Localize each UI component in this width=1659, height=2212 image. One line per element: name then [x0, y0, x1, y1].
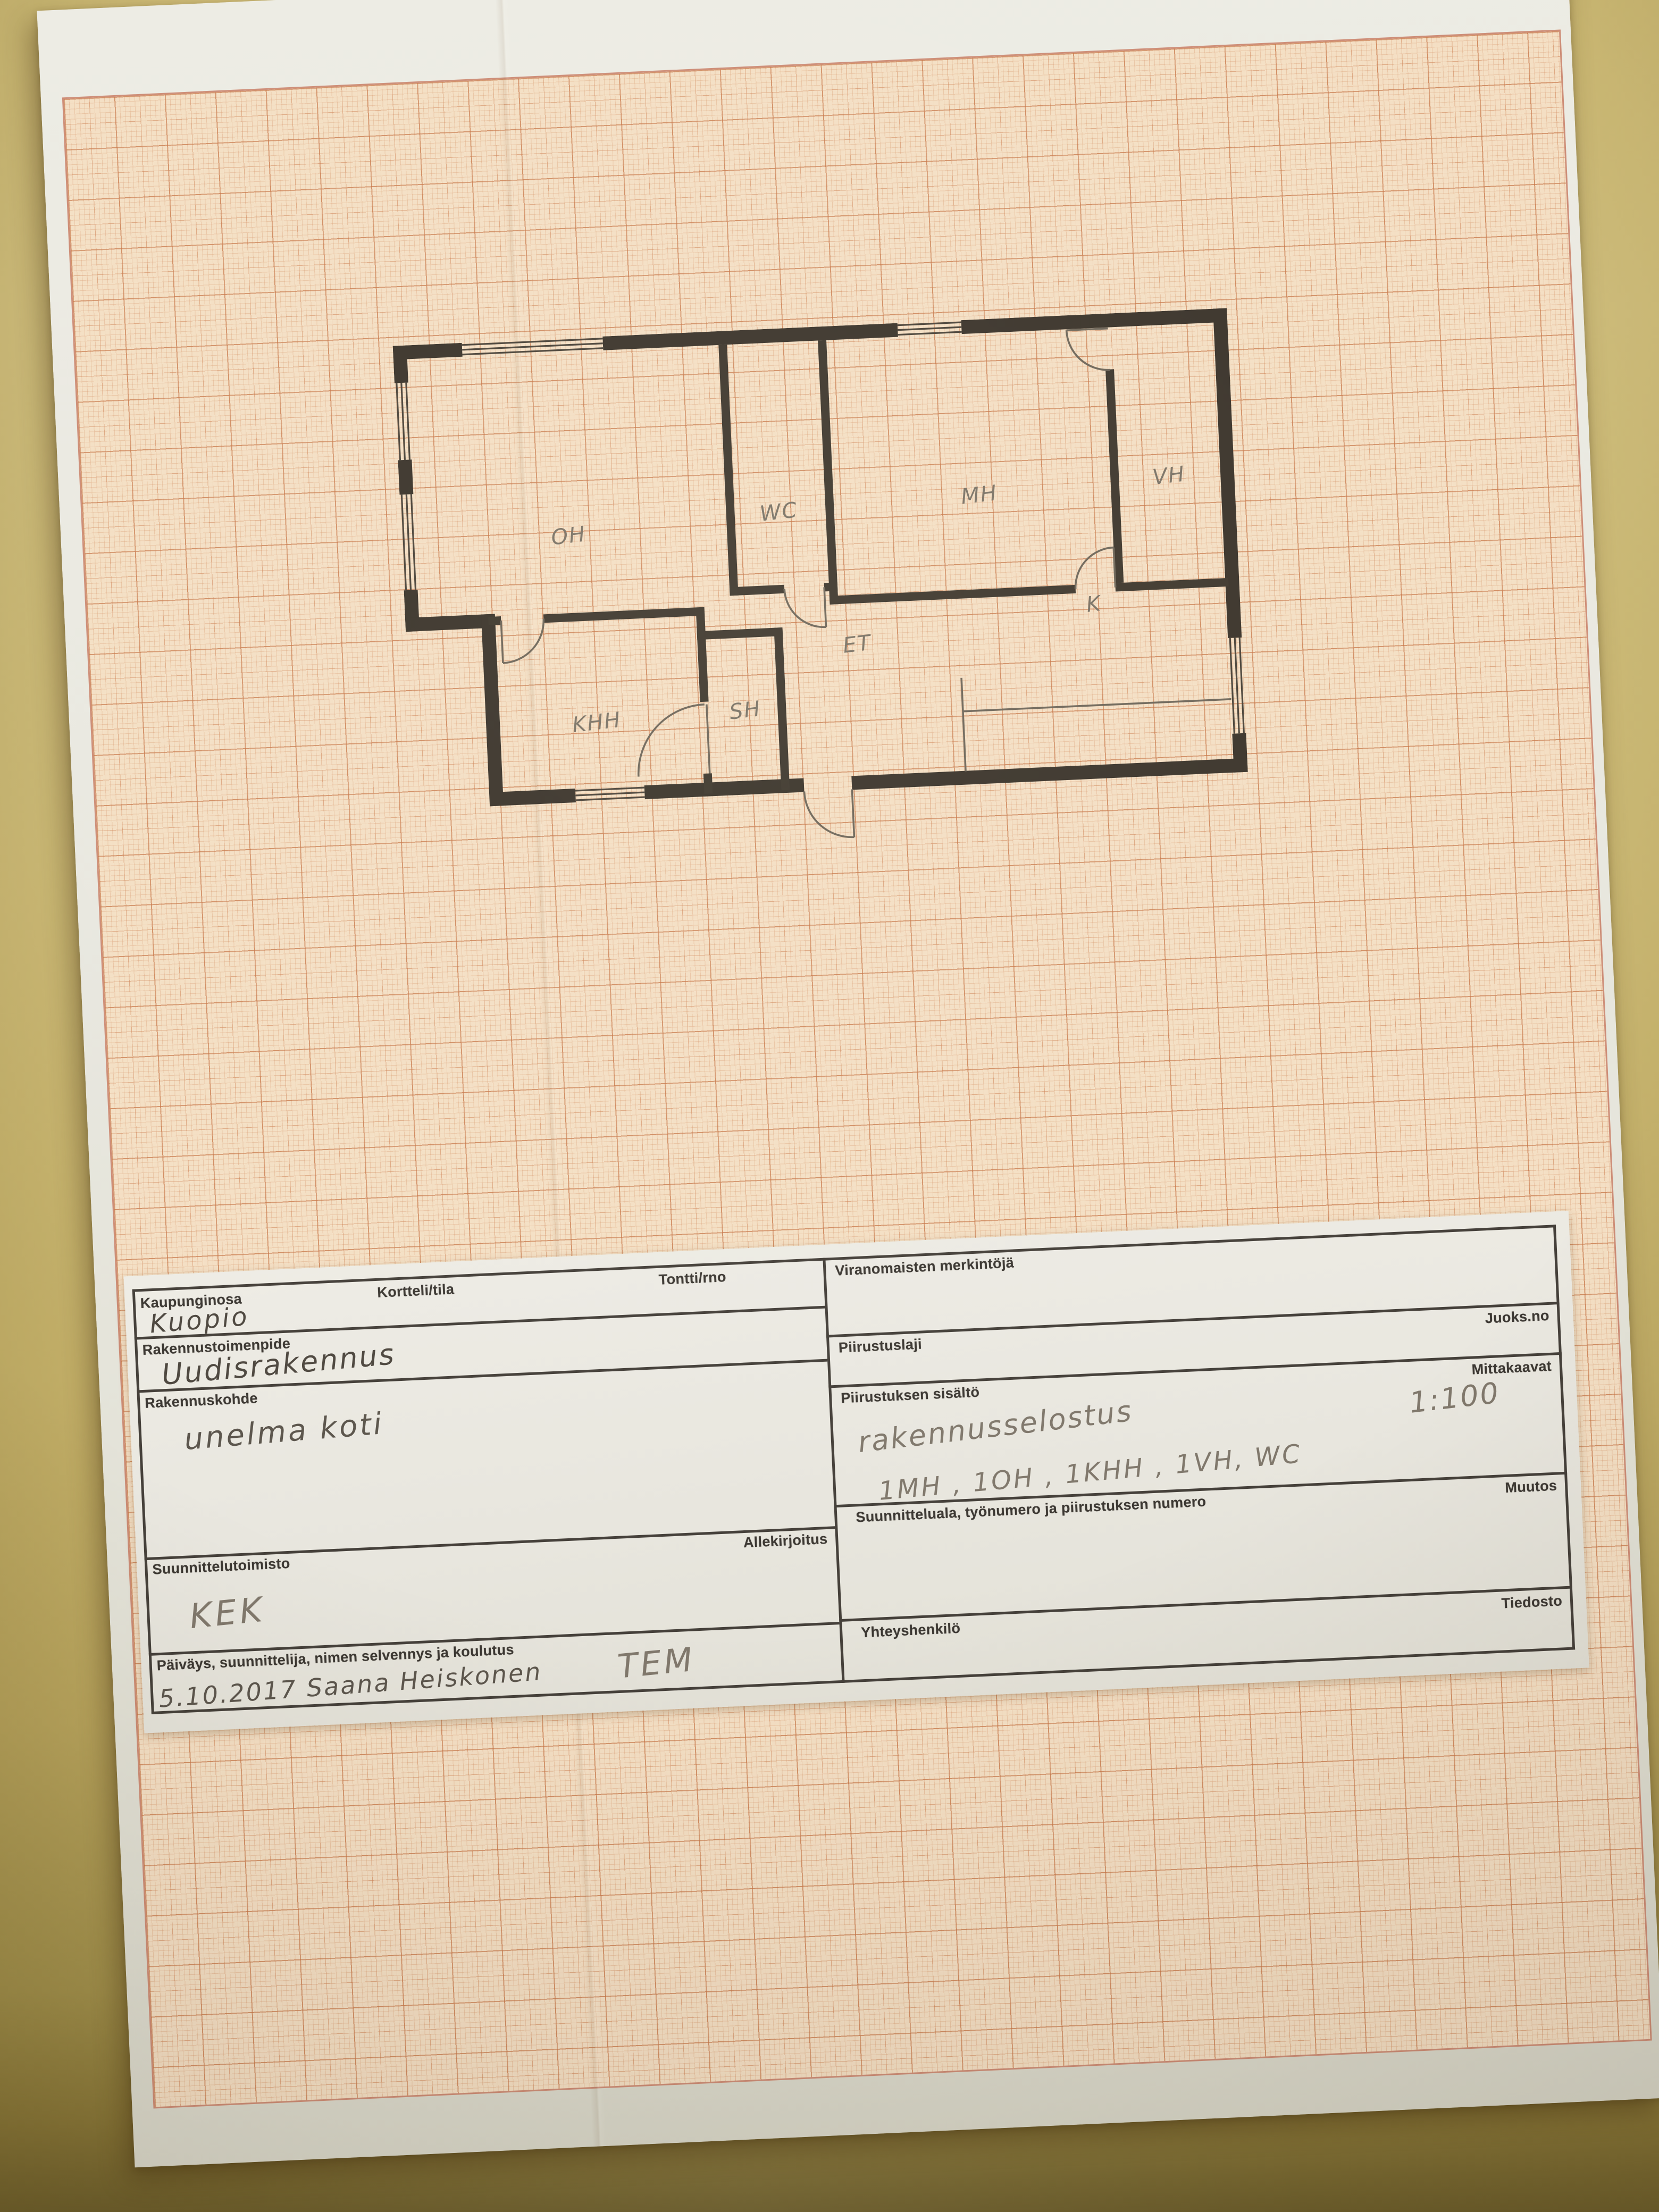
label-yhteyshenkilo: Yhteyshenkilö: [861, 1620, 961, 1641]
door-vh: [1067, 329, 1110, 372]
label-piirustuksen-sisalto: Piirustuksen sisältö: [841, 1384, 980, 1407]
kitchen-counter-line: [961, 666, 1234, 772]
room-label-vh: VH: [1151, 462, 1186, 490]
window-khh-bottom: [575, 787, 645, 800]
window-oh-left-upper: [397, 383, 410, 460]
title-block-table: Kaupunginosa Kortteli/tila Tontti/rno Ra…: [132, 1225, 1576, 1714]
door-wc: [784, 587, 826, 629]
room-label-k: K: [1085, 591, 1103, 617]
door-entry: [804, 789, 854, 839]
room-label-mh: MH: [960, 481, 999, 509]
title-block-sticker: Kaupunginosa Kortteli/tila Tontti/rno Ra…: [124, 1211, 1589, 1733]
room-label-wc: WC: [759, 498, 799, 526]
window-mh-top: [898, 322, 962, 334]
room-label-oh: OH: [550, 522, 587, 550]
value-suunnittelutoimisto: KEK: [188, 1590, 267, 1637]
graph-paper-sheet: OH WC MH VH K ET KHH SH: [37, 0, 1659, 2167]
photo-of-floor-plan-drawing: OH WC MH VH K ET KHH SH: [0, 0, 1659, 2212]
room-label-khh: KHH: [571, 708, 623, 738]
label-tontti-rno: Tontti/rno: [658, 1269, 726, 1288]
value-rakennuskohde: unelma koti: [183, 1406, 385, 1457]
door-sh: [635, 705, 710, 777]
label-piirustuslaji: Piirustuslaji: [838, 1336, 922, 1356]
label-kortteli-tila: Kortteli/tila: [377, 1281, 455, 1301]
window-k-right: [1230, 638, 1244, 734]
value-koulutus: TEM: [616, 1640, 697, 1686]
door-khh: [501, 618, 546, 663]
room-label-sh: SH: [728, 697, 762, 725]
window-oh-left-lower: [401, 494, 415, 590]
floor-plan-drawing: OH WC MH VH K ET KHH SH: [393, 308, 1259, 931]
label-rakennuskohde: Rakennuskohde: [145, 1390, 258, 1412]
room-label-et: ET: [842, 631, 874, 658]
label-tiedosto: Tiedosto: [1397, 1593, 1563, 1616]
door-mh: [1074, 548, 1115, 589]
value-mittakaava: 1:100: [1407, 1376, 1502, 1420]
